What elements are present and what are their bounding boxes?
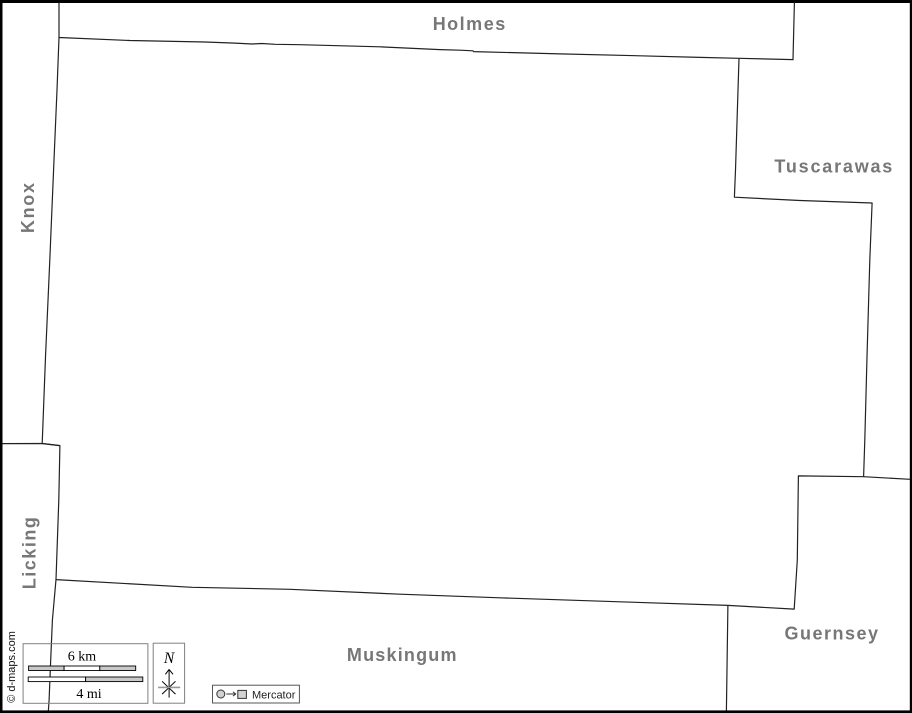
svg-text:Licking: Licking: [20, 516, 40, 590]
svg-text:Tuscarawas: Tuscarawas: [774, 157, 894, 177]
svg-text:4 mi: 4 mi: [76, 687, 101, 702]
svg-text:Guernsey: Guernsey: [785, 624, 880, 644]
svg-text:© d-maps.com: © d-maps.com: [6, 631, 18, 703]
svg-text:Holmes: Holmes: [433, 14, 507, 34]
svg-text:Mercator: Mercator: [252, 689, 296, 701]
svg-text:6 km: 6 km: [68, 650, 97, 665]
svg-text:Knox: Knox: [18, 181, 38, 233]
svg-text:Muskingum: Muskingum: [347, 645, 458, 665]
svg-text:N: N: [163, 650, 176, 667]
